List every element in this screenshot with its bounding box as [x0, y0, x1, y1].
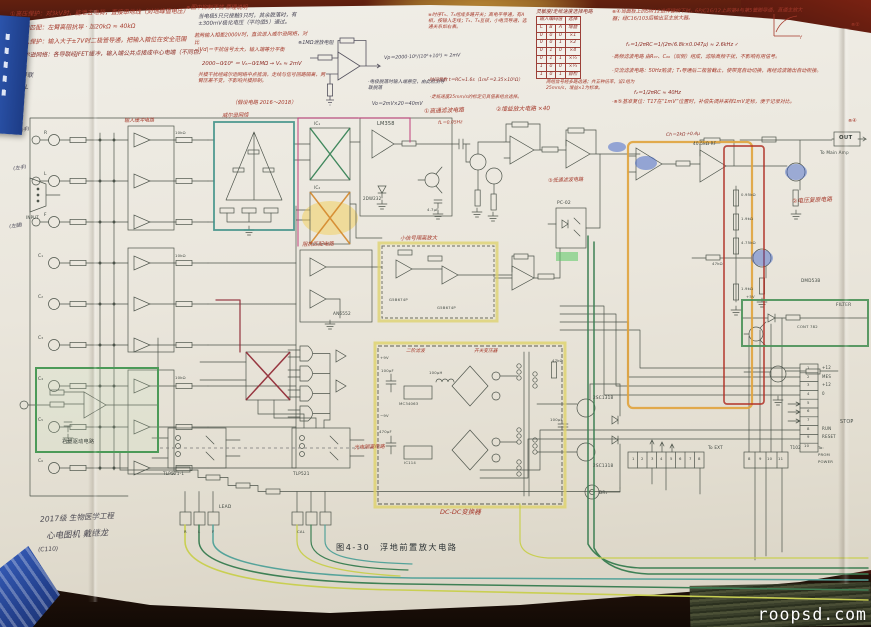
annotation: 2000−0⁄10⁶ ＝ V₆−0⁄1MΩ → V₆ ≈ 2mV: [202, 61, 302, 68]
truth-cell: 1: [556, 71, 566, 79]
annotation: 两组信号经多路选通；共五种倍率，设1组为25mm/s，增益×1为标准。: [546, 80, 640, 92]
annotation: ②增益放大电路 ×40: [496, 106, 550, 115]
annotation: ①高压保护：对3kV时，能泄去电荷，直接串地线（对地峰值电压）: [10, 8, 189, 19]
truth-table-grid: 输入编码值选择CBA增益000×1001×2010×4011×½100×¼101…: [536, 16, 581, 79]
annotation: 小信号隔离放大: [400, 235, 437, 243]
annotation-layer: ①高压保护：对3kV时，能泄去电荷，直接串地线（对地峰值电压）②高频匹配：左臂高…: [0, 0, 871, 627]
annotation: L: [44, 172, 47, 178]
annotation: 右腿驱动电路: [62, 439, 94, 446]
annotation: G5B674P: [437, 305, 456, 310]
annotation: To Main Amp: [820, 150, 849, 156]
annotation: 8: [748, 456, 751, 461]
annotation: ④威尔逊网络：各导联经JFET缓冲，输入端公共点接成中心电端（不同色）: [13, 50, 204, 61]
annotation: 2: [807, 374, 810, 379]
annotation: +9V: [380, 355, 389, 360]
annotation: ※②: [851, 22, 860, 29]
annotation: 47kΩ: [552, 358, 563, 363]
annotation: f: [800, 36, 802, 42]
annotation: IC₁: [314, 121, 320, 127]
annotation: C₃: [38, 336, 43, 342]
annotation: ·时间常数 t＝RC≈1.6s（1mF＝2.35×10⁵Ω）: [428, 78, 523, 84]
truth-cell: ×4: [565, 48, 580, 56]
annotation: (左腿): [9, 223, 23, 231]
annotation: 10kΩ: [175, 253, 186, 258]
annotation: 47kΩ: [712, 261, 723, 266]
annotation: 1: [632, 456, 635, 461]
annotation: +5V: [746, 294, 755, 299]
annotation: ①高通滤波电路: [424, 108, 464, 117]
annotation: （假设电路 2016～2018）: [232, 100, 296, 107]
truth-cell: 选择: [565, 17, 580, 25]
annotation: 9: [759, 456, 762, 461]
annotation: 输入缓冲电路: [124, 117, 154, 124]
truth-cell: ×1: [565, 32, 580, 40]
annotation: 4: [807, 391, 810, 396]
annotation: ③低通滤波电路: [548, 177, 583, 185]
annotation: ·高频滤波电路 由R₀₇、C₀₆（双侧）组成，滤除高频干扰，不影响有用信号。: [612, 54, 780, 61]
annotation: 阻抗匹配电路: [302, 241, 334, 249]
truth-cell: 1: [556, 55, 566, 63]
annotation: 100μF: [550, 417, 563, 422]
truth-cell: 1: [537, 71, 547, 79]
annotation: 4.7μF: [427, 207, 439, 212]
annotation: To EXT: [708, 445, 723, 451]
truth-cell: 0: [546, 71, 556, 79]
truth-cell: C: [537, 24, 547, 32]
annotation: R: [44, 131, 47, 137]
annotation: −9V: [380, 413, 389, 418]
annotation: 2: [641, 456, 644, 461]
annotation: 100μH: [429, 370, 443, 375]
annotation: 6: [679, 456, 682, 461]
annotation: TLP521: [293, 471, 310, 477]
annotation: F: [44, 213, 47, 219]
truth-cell: 增益: [565, 24, 580, 32]
annotation: 若两输入相差2000V时，直流进入威尔逊网络，对比: [194, 31, 310, 46]
watermark: roopsd.com: [758, 605, 867, 624]
annotation: ※④: [848, 118, 857, 125]
annotation: 2DW232: [363, 196, 381, 201]
annotation: C₅: [38, 418, 43, 424]
annotation: ·交流滤波电路：50Hz陷波；T₁导通后二极管截止，使带宽自动切换，再经滤波输出…: [612, 68, 821, 75]
annotation: CONT 782: [797, 324, 818, 329]
annotation: 470μF: [379, 429, 392, 434]
truth-cell: 1: [546, 48, 556, 56]
annotation: 100μF: [381, 368, 394, 373]
annotation: 0: [822, 391, 825, 396]
annotation: |Vd|＝干扰信号太大，输入端等分平衡: [198, 47, 285, 54]
annotation: DC-DC变换器: [440, 508, 481, 517]
annotation: Vo＝2mV×20＝40mV: [372, 102, 423, 108]
annotation: 8: [698, 456, 701, 461]
annotation: 开关变压器: [474, 349, 497, 355]
truth-cell: ×2: [565, 40, 580, 48]
annotation: LEAD: [219, 505, 231, 511]
annotation: 4: [660, 456, 663, 461]
annotation: PROM: [818, 452, 830, 457]
annotation: ②高频匹配：左臂高阻抗导 · 加20kΩ ≈ 40kΩ: [12, 23, 135, 33]
annotation: MC34063: [399, 401, 418, 406]
truth-cell: B: [546, 24, 556, 32]
annotation: INPUT: [26, 215, 39, 220]
truth-cell: 1: [556, 40, 566, 48]
annotation: G5B674P: [389, 297, 408, 302]
annotation: 3: [651, 456, 654, 461]
annotation: 2SC1318: [593, 395, 613, 401]
annotation: AN6552: [333, 311, 351, 317]
annotation: CAL: [297, 529, 305, 534]
annotation: ※④当面板上的SW12选择键按下时，6P/C16/12上的第4与第5管脚导通，直…: [612, 7, 812, 22]
annotation: 10kΩ: [175, 130, 186, 135]
truth-cell: 0: [556, 32, 566, 40]
annotation: 2SC1318: [593, 463, 613, 469]
truth-cell: 0: [537, 40, 547, 48]
annotation: TLP521-1: [163, 471, 184, 477]
annotation: 8: [807, 426, 810, 431]
annotation: Vp＝2000·10⁶/(10⁶+10⁹) ≈ 2mV: [384, 53, 461, 62]
truth-cell: 0: [546, 63, 556, 71]
annotation: 0.95kΩ: [741, 192, 756, 197]
truth-cell: 0: [556, 48, 566, 56]
truth-table-title: 灵敏度/走纸速度选择电路: [536, 8, 593, 15]
figure-caption: 图4-30 浮地前置放大电路: [336, 541, 457, 553]
annotation: 5: [807, 400, 810, 405]
annotation: +12: [822, 382, 831, 387]
truth-cell: 自检: [565, 71, 580, 79]
annotation: 7: [807, 417, 810, 422]
student-note-group: (C110): [38, 545, 59, 553]
annotation: 11: [778, 456, 783, 461]
annotation: 5: [670, 456, 673, 461]
annotation: f₁＝1/2πRC＝1/(2π√6.8k×0.047μ) ≈ 2.6kHz ✓: [626, 42, 739, 49]
annotation: LM358: [377, 121, 395, 128]
annotation: ·※⑤基准复位：T17在“1mV”位置时，补偿失调并采样1mV定标，便于记录对比…: [612, 99, 795, 106]
annotation: STOP: [840, 420, 853, 426]
truth-cell: 输入编码值: [537, 17, 566, 25]
annotation: T102: [790, 445, 801, 450]
annotation: 共模干扰经威尔逊网络中点抵消，走线与信号回路隔离，两臂压差不变，不影响共模抑制。: [198, 72, 326, 85]
truth-cell: 0: [537, 32, 547, 40]
truth-cell: 1: [546, 55, 556, 63]
annotation: RESET: [822, 434, 836, 439]
truth-cell: 1: [537, 63, 547, 71]
annotation: L: [198, 529, 200, 534]
annotation: To:: [818, 445, 824, 450]
annotation: R: [184, 529, 187, 534]
annotation: C₁: [38, 254, 43, 260]
annotation: DMD53B: [801, 278, 820, 284]
truth-cell: ×¼: [565, 63, 580, 71]
truth-cell: A: [556, 24, 566, 32]
annotation: ·走纸速度25mm/s的标定见真值表组合选择。: [430, 95, 522, 101]
truth-table: 灵敏度/走纸速度选择电路 输入编码值选择CBA增益000×1001×2010×4…: [536, 8, 593, 79]
annotation: RUN: [822, 426, 831, 431]
annotation: 10kΩ: [175, 375, 186, 380]
annotation: OUT: [839, 135, 853, 142]
truth-cell: 0: [537, 55, 547, 63]
annotation: ③输入保护：输入大于±7V时二极管导通，把输入箝位在安全范围: [12, 36, 186, 47]
truth-cell: 0: [556, 63, 566, 71]
annotation: Ch＝2kΩ＋0.4μ: [666, 132, 700, 139]
truth-cell: 0: [537, 48, 547, 56]
annotation: C₆: [38, 459, 43, 465]
annotation: POWER: [818, 459, 833, 464]
annotation: F: [212, 529, 214, 534]
annotation: 10: [804, 443, 809, 448]
photo-of-schematic: ①高压保护：对3kV时，能泄去电荷，直接串地线（对地峰值电压）②高频匹配：左臂高…: [0, 0, 871, 627]
annotation: 7: [689, 456, 692, 461]
annotation: ②电压复原电路: [792, 197, 832, 207]
annotation: DR₁: [599, 490, 607, 496]
annotation: 1: [807, 365, 810, 370]
annotation: f₂＝1/2πRC ≈ 40Hz: [634, 90, 681, 97]
annotation: 40.5kΩ RF: [693, 141, 716, 147]
annotation: 当电极5只只接触3只时，其余脱落时，有±300mV极化电压（平均值5）通过。: [198, 12, 316, 28]
annotation: FILTER: [836, 303, 851, 309]
annotation: IC₂: [314, 185, 320, 191]
annotation: C₄: [38, 377, 43, 383]
annotation: ※时序T₅、T₆组成多路开关；高电平导通，有A相，按输入走线；T₅、T₆互锁，小…: [428, 13, 528, 32]
annotation: 1.9kΩ: [741, 286, 753, 291]
truth-cell: 0: [546, 32, 556, 40]
annotation: fL＝0.05Hz: [438, 120, 463, 127]
annotation: 9: [807, 434, 810, 439]
annotation: 威尔逊网络: [222, 113, 249, 120]
annotation: 二阶滤波: [406, 349, 425, 355]
annotation: 10: [767, 456, 772, 461]
annotation: ※图中抑制干扰 原理说明: [186, 5, 247, 12]
annotation: 3: [807, 382, 810, 387]
annotation: (左手): [13, 165, 27, 173]
truth-cell: ×½: [565, 55, 580, 63]
annotation: 4.75kΩ: [741, 240, 756, 245]
annotation: 光电隔离电路: [354, 444, 385, 452]
annotation: 6: [807, 408, 810, 413]
annotation: IC114: [404, 460, 416, 465]
annotation: C₂: [38, 295, 43, 301]
annotation: PC-02: [557, 201, 571, 207]
annotation: +12: [822, 365, 831, 370]
annotation: 1.9kΩ: [741, 216, 753, 221]
truth-cell: 0: [546, 40, 556, 48]
annotation: MES: [822, 374, 831, 379]
